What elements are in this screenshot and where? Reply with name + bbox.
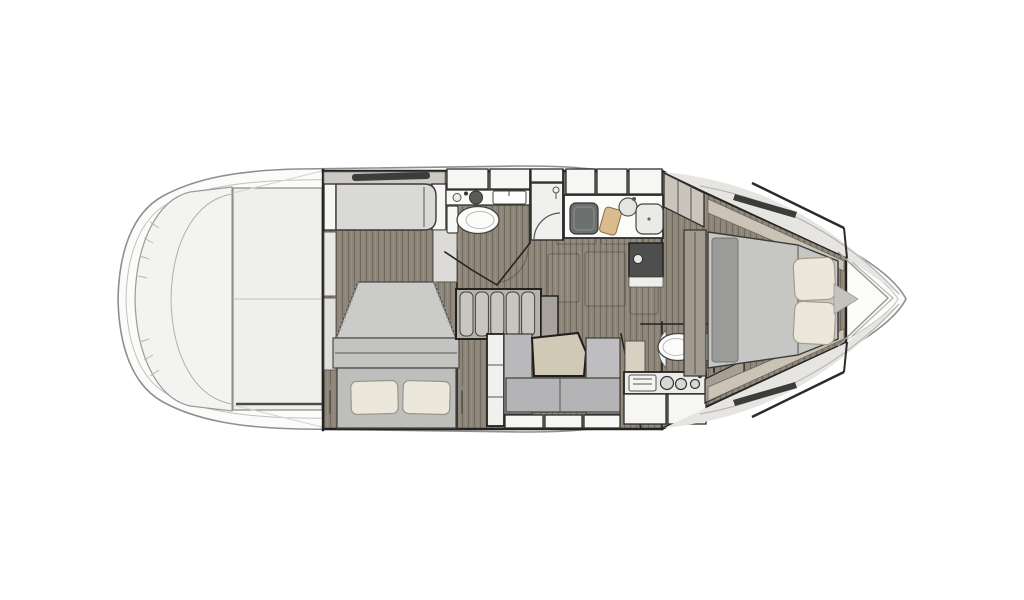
toilet-bowl xyxy=(457,207,499,234)
appliance-drawer xyxy=(629,277,663,287)
sink-drain-dot xyxy=(647,217,650,220)
aft-bed-pillow-left xyxy=(351,380,399,414)
dinette-locker-1 xyxy=(505,415,543,428)
aft-cabin-sofa xyxy=(336,184,436,230)
dinette xyxy=(487,333,641,429)
appliance-knob xyxy=(634,255,643,264)
dinette-shelf-column xyxy=(487,334,504,426)
aft-galley-cupboard-1 xyxy=(624,394,666,424)
head-locker-left xyxy=(447,169,488,189)
counter-sink xyxy=(629,375,656,391)
shower xyxy=(531,169,563,240)
burner-small xyxy=(691,380,700,389)
bow-pillow-bottom xyxy=(793,301,836,345)
head-locker-right xyxy=(490,169,530,189)
aft-cabin-cabinet-upper xyxy=(324,232,336,296)
burner-large xyxy=(661,377,674,390)
dinette-locker-2 xyxy=(545,415,582,428)
aft-deck xyxy=(233,171,322,427)
stair-tread xyxy=(460,292,473,336)
bed-runner xyxy=(712,238,738,362)
stair-tread xyxy=(522,292,535,336)
galley-locker-2 xyxy=(597,169,627,194)
dinette-table xyxy=(532,333,586,376)
shower-locker xyxy=(531,169,563,182)
bedside-lamp-left-shade xyxy=(328,386,333,391)
vanity-faucet xyxy=(453,194,461,202)
side-table-left xyxy=(324,184,336,230)
stairs xyxy=(456,289,558,339)
vanity-basin xyxy=(470,191,483,204)
stair-landing xyxy=(541,296,558,339)
aft-bed-pillow-right xyxy=(403,380,451,414)
bedside-lamp-right-shade xyxy=(460,386,465,391)
stair-tread xyxy=(475,292,488,336)
galley-locker-1 xyxy=(566,169,595,194)
burner-medium xyxy=(676,379,687,390)
day-head-cabinet xyxy=(625,341,645,373)
stair-tread xyxy=(491,292,504,336)
round-basin-tap xyxy=(632,197,636,201)
aft-bed xyxy=(328,282,465,428)
aft-cabin-wardrobe xyxy=(433,230,457,282)
dinette-locker-3 xyxy=(584,415,620,428)
stair-tread xyxy=(506,292,519,336)
vanity-tap-dot xyxy=(464,192,468,196)
floor-plan-canvas xyxy=(0,0,1024,600)
galley-locker-3 xyxy=(629,169,662,194)
bow-pillow-top xyxy=(793,257,836,301)
yacht-floor-plan xyxy=(0,0,1024,600)
toilet-tank xyxy=(447,206,458,233)
dinette-sofa-bottom xyxy=(506,378,620,412)
